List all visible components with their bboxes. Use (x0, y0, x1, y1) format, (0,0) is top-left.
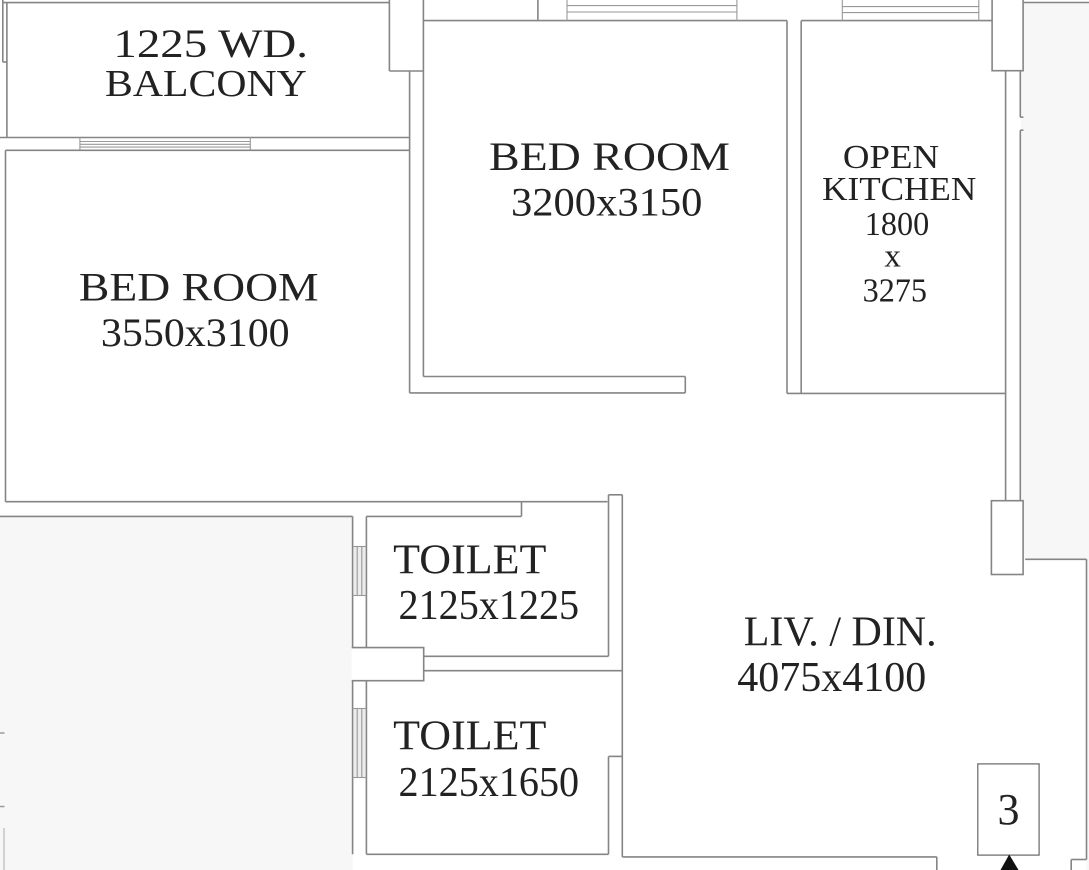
svg-text:2125x1650: 2125x1650 (399, 760, 580, 806)
svg-text:x: x (884, 239, 901, 275)
svg-text:3: 3 (998, 785, 1020, 834)
svg-text:3200x3150: 3200x3150 (511, 179, 702, 224)
svg-text:3275: 3275 (863, 272, 927, 309)
svg-text:KITCHEN: KITCHEN (822, 171, 976, 208)
svg-text:1800: 1800 (865, 206, 929, 243)
svg-text:3550x3100: 3550x3100 (101, 310, 290, 355)
svg-text:LIV. / DIN.: LIV. / DIN. (744, 610, 937, 656)
svg-text:BALCONY: BALCONY (105, 63, 307, 105)
svg-text:TOILET: TOILET (393, 538, 546, 584)
svg-text:1225 WD.: 1225 WD. (113, 21, 308, 66)
svg-text:TOILET: TOILET (393, 714, 546, 760)
svg-text:BED ROOM: BED ROOM (489, 134, 730, 179)
svg-text:4075x4100: 4075x4100 (737, 655, 926, 701)
svg-text:BED ROOM: BED ROOM (79, 265, 319, 310)
svg-text:2125x1225: 2125x1225 (399, 583, 580, 629)
